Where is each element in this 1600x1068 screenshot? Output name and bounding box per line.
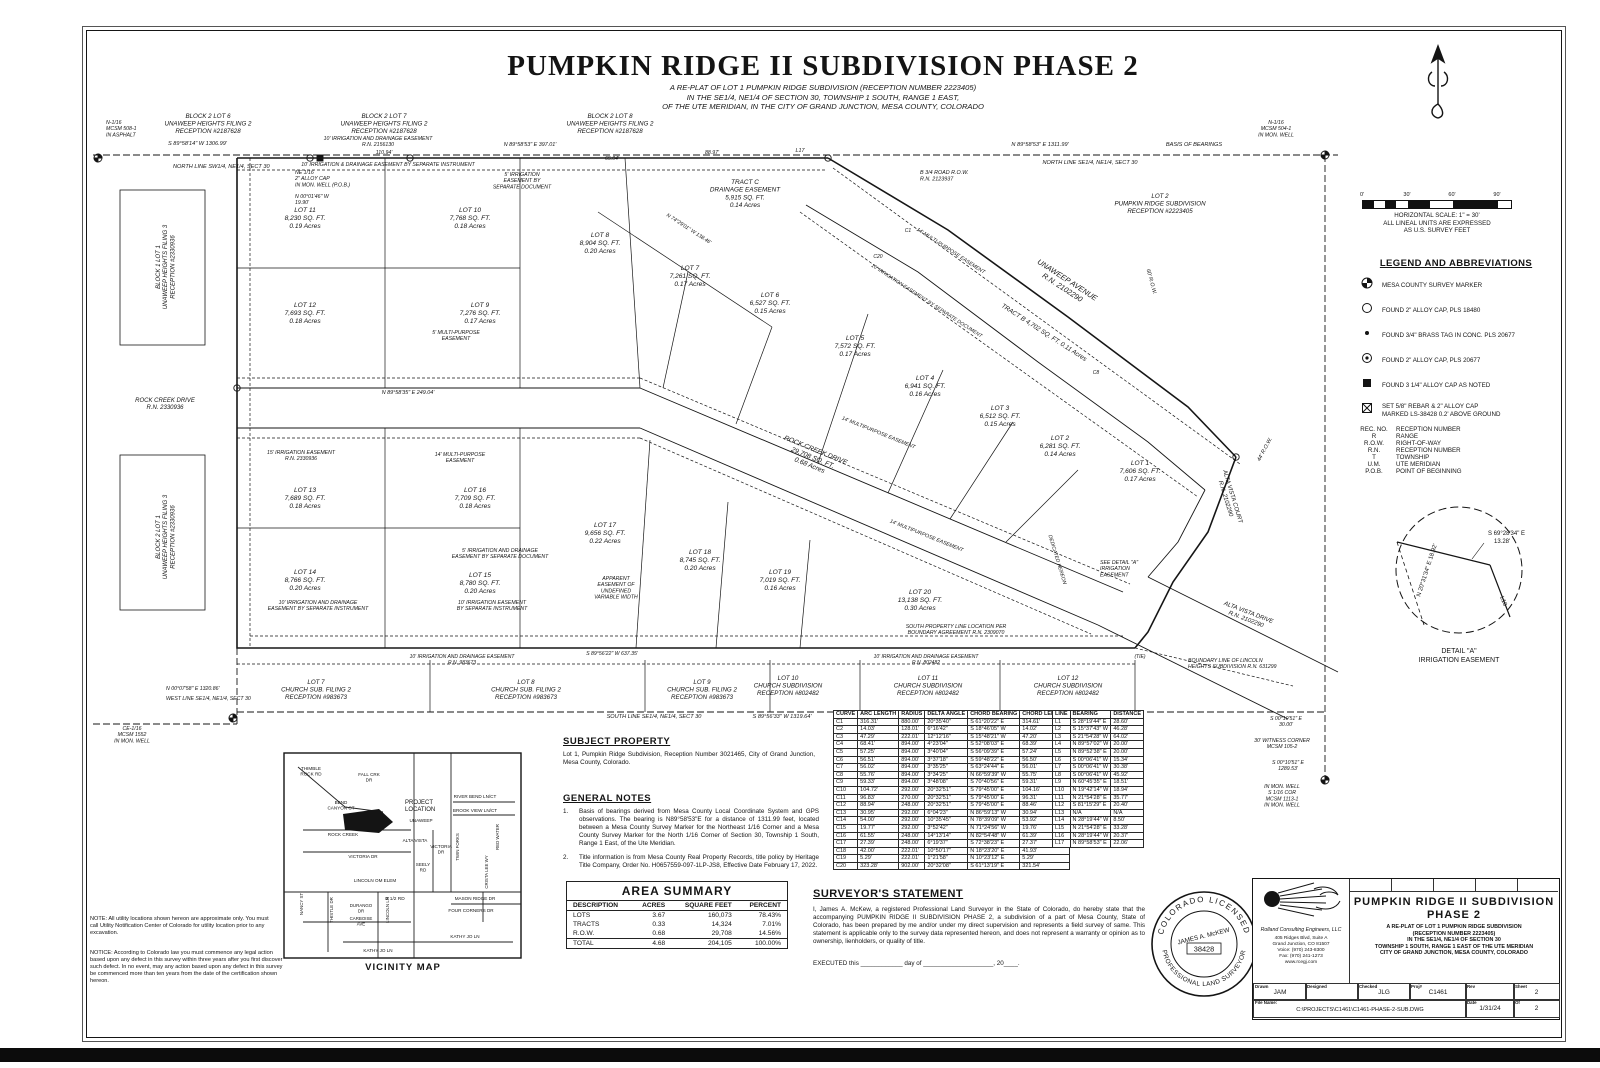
vicinity-street-label: FOUR CORNERS DR [448, 908, 494, 913]
table-row: L3S 21°54'28" W64.02' [1053, 733, 1144, 741]
plat-annotation: 110.94' [376, 150, 393, 156]
vicinity-street-label: CRISTA LEE WY [484, 855, 489, 888]
table-cell: S 70°40'56" E [968, 779, 1020, 787]
table-cell: L13 [1053, 809, 1071, 817]
note-number: 1. [563, 808, 579, 848]
plat-annotation: BLOCK 2 LOT 1UNAWEEP HEIGHTS FILING 3REC… [156, 494, 176, 579]
vicinity-street-label: TWIN FORKS [455, 833, 460, 861]
table-cell: L2 [1053, 726, 1071, 734]
plat-annotation: 10' IRRIGATION EASEMENTBY SEPARATE INSTR… [457, 600, 528, 612]
table-cell: S 15°48'21" W [968, 733, 1020, 741]
field-filename-label: File Name: [1255, 1000, 1277, 1005]
lot-label: LOT 158,780 SQ. FT.0.20 Acres [460, 572, 501, 595]
field-of: Of 2 [1513, 999, 1560, 1018]
general-note-item: 2.Title information is from Mesa County … [563, 854, 819, 870]
field-date: Date 1/31/24 [1465, 999, 1515, 1018]
table-cell: 18.94' [1111, 786, 1144, 794]
general-notes: GENERAL NOTES 1.Basis of bearings derive… [563, 793, 819, 876]
abbreviation-value: RECEPTION NUMBER [1396, 426, 1461, 433]
lot-label: LOT 137,689 SQ. FT.0.18 Acres [285, 487, 326, 510]
table-cell: C2 [834, 726, 858, 734]
vicinity-street-label: KATHY JO LN [363, 948, 392, 953]
scale-tick: 0' [1360, 192, 1364, 198]
table-cell: 292.00' [899, 817, 925, 825]
plat-annotation: NORTH LINE SW1/4, NE1/4, SECT 30 [173, 164, 270, 170]
title-block: Rolland Consulting Engineers, LLC 405 Ri… [1252, 878, 1560, 1020]
detail-a-caption2: IRRIGATION EASEMENT [1419, 657, 1500, 664]
table-cell: 3°40'04" [925, 748, 968, 756]
table-cell: 64.02' [1111, 733, 1144, 741]
table-cell: N 66°59'39" W [968, 771, 1020, 779]
table-cell: S 63°24'44" E [968, 764, 1020, 772]
table-cell: N/A [1111, 809, 1144, 817]
lot-label: LOT 57,572 SQ. FT.0.17 Acres [835, 335, 876, 358]
table-cell: 292.00' [899, 809, 925, 817]
table-row: L5N 89°52'38" E20.00' [1053, 748, 1144, 756]
table-row: L11N 21°54'28" E35.77' [1053, 794, 1144, 802]
table-cell: 68.41' [858, 741, 899, 749]
plat-annotation: CE-1/16MCSM 1552IN MON. WELL [114, 726, 150, 744]
title-area: PUMPKIN RIDGE II SUBDIVISION PHASE 2 A R… [88, 50, 1558, 112]
table-header: CHORD BEARING [968, 711, 1020, 719]
table-cell: S 79°45'00" E [968, 794, 1020, 802]
table-row: C656.51'894.00'3°37'18"S 59°48'22" E56.5… [834, 756, 1070, 764]
plat-annotation: ROCK CREEK DRIVER.N. 2330936 [135, 398, 196, 411]
table-row: L13N/AN/A [1053, 809, 1144, 817]
table-cell: S 72°38'23" E [968, 840, 1020, 848]
company-name: Rolland Consulting Engineers, LLC [1253, 927, 1349, 933]
vicinity-map-caption: VICINITY MAP [283, 962, 523, 973]
table-cell: 894.00' [899, 748, 925, 756]
vicinity-street-label: UNAWEEP [409, 818, 432, 823]
area-cell: TOTAL [567, 939, 632, 949]
vicinity-street-label: BENDCANYON CT [327, 800, 354, 811]
title-block-title: PUMPKIN RIDGE II SUBDIVISION PHASE 2 A R… [1349, 893, 1559, 957]
table-cell: 20°32'51" [925, 786, 968, 794]
table-cell: N 89°52'38" E [1070, 748, 1111, 756]
plat-annotation: LOT 7CHURCH SUB. FILING 2RECEPTION #9836… [281, 679, 351, 701]
plat-annotation: BLOCK 1 LOT 1UNAWEEP HEIGHTS FILING 3REC… [156, 224, 176, 309]
table-cell: 15.34' [1111, 756, 1144, 764]
table-cell: N 21°54'28" E [1070, 794, 1111, 802]
plat-annotation: SOUTH LINE SE1/4, NE1/4, SECT 30 [607, 714, 703, 720]
vicinity-street-label: NANCY ST [299, 893, 304, 915]
plat-annotation: N 89°58'53" E 397.01' [504, 142, 558, 148]
plat-annotation: WEST LINE SE1/4, NE1/4, SECT 30 [166, 696, 251, 702]
table-cell: N 60°45'35" E [1070, 779, 1111, 787]
table-cell: 14°13'14" [925, 832, 968, 840]
plat-annotation: N 00°01'46" W19.90' [295, 194, 330, 206]
plat-annotation: APPARENTEASEMENT OFUNDEFINEDVARIABLE WID… [594, 576, 638, 601]
plat-annotation: 88.97' [705, 150, 720, 156]
table-cell: 894.00' [899, 771, 925, 779]
table-row: L15N 21°54'28" E33.28' [1053, 824, 1144, 832]
vicinity-street-label: CARBOISEAVE [350, 916, 373, 926]
vicinity-street-label: SEELYRD [416, 862, 430, 873]
legend-item: FOUND 3/4" BRASS TAG IN CONC. PLS 20677 [1352, 326, 1560, 345]
plat-sheet: PUMPKIN RIDGE II SUBDIVISION PHASE 2 A R… [0, 0, 1600, 1068]
plat-annotation: S 89°56'22" W 637.35' [586, 651, 639, 657]
plat-annotation: 60' R.O.W. [1145, 268, 1158, 295]
table-cell: 222.01' [899, 847, 925, 855]
plat-annotation: 30' WITNESS CORNERMCSM 105-2 [1254, 738, 1310, 750]
surveyor-body: I, James A. McKew, a registered Professi… [813, 906, 1145, 946]
plat-annotation: BLOCK 2 LOT 6UNAWEEP HEIGHTS FILING 2REC… [165, 113, 253, 135]
plat-annotation: UNAWEEP AVENUER.N. 2102290 [1031, 257, 1100, 311]
field-sheet-value: 2 [1514, 989, 1559, 996]
area-cell: R.O.W. [567, 929, 632, 939]
lot-label: LOT 66,527 SQ. FT.0.15 Acres [750, 292, 791, 315]
vicinity-street-label: VICTORIA DR [348, 854, 378, 859]
area-header: SQUARE FEET [671, 901, 738, 911]
surveyor-statement: SURVEYOR'S STATEMENT I, James A. McKew, … [813, 888, 1145, 968]
plat-annotation: IN MON. WELLS 1/16 CORMCSM 1113-1IN MON.… [1264, 784, 1300, 809]
table-row: L7S 00°06'41" W30.38' [1053, 764, 1144, 772]
table-cell: 222.01' [899, 733, 925, 741]
field-date-value: 1/31/24 [1466, 1005, 1514, 1012]
table-cell: 5.29' [858, 855, 899, 863]
table-cell: C17 [834, 840, 858, 848]
seal-number: 38428 [1194, 945, 1215, 954]
plat-annotation: BASIS OF BEARINGS [1166, 142, 1222, 148]
table-cell: N 89°57'02" W [1070, 741, 1111, 749]
table-row: C214.03'128.01'6°16'42"S 18°46'05" W14.0… [834, 726, 1070, 734]
field-filename-value: C:\PROJECTS\C1461\C1461-PHASE-2-SUB.DWG [1254, 1007, 1466, 1013]
table-cell: 18.51' [1111, 779, 1144, 787]
detail-a: S 69°28'34" E 13.28' N 20°31'34" E 18.92… [1372, 495, 1547, 675]
lot-label: LOT 148,766 SQ. FT.0.20 Acres [285, 569, 326, 592]
abbreviation-value: RIGHT-OF-WAY [1396, 440, 1441, 447]
plat-annotation: NORTH LINE SE1/4, NE1/4, SECT 30 [1042, 160, 1138, 166]
table-cell: C5 [834, 748, 858, 756]
table-cell: C8 [834, 771, 858, 779]
detail-a-caption: DETAIL "A" [1441, 648, 1477, 655]
title-sub2: IN THE SE1/4, NE1/4 OF SECTION 30, TOWNS… [88, 93, 1558, 103]
svg-text:COLORADO LICENSED: COLORADO LICENSED [1156, 895, 1252, 936]
plat-annotation: LOT 8CHURCH SUB. FILING 2RECEPTION #9836… [491, 679, 561, 701]
table-cell: N 10°23'12" E [968, 855, 1020, 863]
plat-annotation: 14' MULTIPURPOSE EASEMENT [889, 519, 965, 554]
table-cell: 5.29' [1020, 855, 1069, 863]
lot-label: LOT 2013,138 SQ. FT.0.30 Acres [898, 589, 943, 612]
table-cell: C1 [834, 718, 858, 726]
plat-annotation: BOUNDARY LINE OF LINCOLNHEIGHTS SUBDIVIS… [1188, 658, 1277, 670]
company-logo-icon [1256, 881, 1346, 921]
table-cell: C3 [834, 733, 858, 741]
table-row: C1519.77'292.00'3°52'42"N 71°24'56" W19.… [834, 824, 1070, 832]
scale-bar-graphic [1362, 200, 1512, 209]
plat-annotation: 14' MULTIPURPOSE EASEMENT [841, 416, 917, 451]
abbreviation-value: RECEPTION NUMBER [1396, 447, 1461, 454]
table-cell: 4°23'04" [925, 741, 968, 749]
table-cell: 46.28' [1111, 726, 1144, 734]
table-row: C557.25'894.00'3°40'04"S 56°09'39" E57.2… [834, 748, 1070, 756]
table-cell: 28.60' [1111, 718, 1144, 726]
lot-label: LOT 179,656 SQ. FT.0.22 Acres [585, 522, 626, 545]
lot-label: LOT 17,606 SQ. FT.0.17 Acres [1120, 460, 1161, 483]
table-cell: N 21°54'28" E [1070, 824, 1111, 832]
lot-label: LOT 118,230 SQ. FT.0.19 Acres [285, 207, 326, 230]
area-cell: 7.01% [738, 920, 787, 929]
page-title: PUMPKIN RIDGE II SUBDIVISION PHASE 2 [88, 50, 1558, 83]
table-row: C855.76'894.00'3°34'25"N 66°59'39" W55.7… [834, 771, 1070, 779]
table-row: L10N 19°42'14" W18.94' [1053, 786, 1144, 794]
area-cell: 4.68 [632, 939, 672, 949]
table-cell: 6°19'37" [925, 840, 968, 848]
legend-item-label: FOUND 3 1/4" ALLOY CAP AS NOTED [1382, 382, 1490, 389]
table-cell: 19.77' [858, 824, 899, 832]
vicinity-street-label: KATHY JO LN [450, 934, 479, 939]
lot-label: LOT 107,768 SQ. FT.0.18 Acres [450, 207, 491, 230]
table-cell: L1 [1053, 718, 1071, 726]
table-row: C1316.31'880.00'20°35'40"S 61°20'22" E31… [834, 718, 1070, 726]
table-cell: 12°12'16" [925, 733, 968, 741]
vicinity-street-label: THIMBLEROCK RD [300, 766, 322, 777]
table-cell: 88.94' [858, 802, 899, 810]
table-cell: 128.01' [899, 726, 925, 734]
vicinity-street-label: VICTORIADR [430, 844, 453, 855]
road-edges [237, 205, 1338, 719]
table-cell: C13 [834, 809, 858, 817]
legend-item: FOUND 2" ALLOY CAP, PLS 18480 [1352, 301, 1560, 320]
plat-annotation: 14' MULTI-PURPOSEEASEMENT [435, 452, 486, 464]
vicinity-street-label: THISTLE DR [329, 897, 334, 923]
field-proj-value: C1461 [1410, 989, 1466, 996]
plat-annotation: SEE DETAIL "A"IRRIGATIONEASEMENT [1100, 560, 1139, 578]
table-cell: L3 [1053, 733, 1071, 741]
table-row: C1842.00'222.01'10°50'17"N 18°23'20" E41… [834, 847, 1070, 855]
abbreviation-row: R.N.RECEPTION NUMBER [1352, 447, 1560, 454]
table-cell: S 00°06'41" W [1070, 764, 1111, 772]
detail-a-bearing2: N 20°31'34" E 18.92' [1416, 543, 1439, 597]
scale-caption: HORIZONTAL SCALE: 1" = 30' [1352, 212, 1522, 220]
lot-label: LOT 88,904 SQ. FT.0.20 Acres [580, 232, 621, 255]
table-row: L6S 00°06'41" W15.34' [1053, 756, 1144, 764]
abbreviation-key: R [1352, 433, 1396, 440]
plat-annotation: N 74°29'01" W 138.46' [665, 212, 713, 246]
table-cell: C19 [834, 855, 858, 863]
plat-annotation: N 89°58'35" E 249.04' [382, 390, 436, 396]
plat-annotation: 10' IRRIGATION AND DRAINAGE EASEMENTR.N.… [324, 136, 434, 148]
table-cell: 56.51' [858, 756, 899, 764]
table-cell: 3°37'18" [925, 756, 968, 764]
legend-item: FOUND 3 1/4" ALLOY CAP AS NOTED [1352, 376, 1560, 395]
field-drawn-value: JAM [1254, 989, 1306, 996]
abbreviation-row: R.O.W.RIGHT-OF-WAY [1352, 440, 1560, 447]
scale-caption2: ALL LINEAL UNITS ARE EXPRESSED [1352, 220, 1522, 228]
table-cell: N 28°19'44" W [1070, 832, 1111, 840]
lot-label: LOT 197,019 SQ. FT.0.16 Acres [760, 569, 801, 592]
table-cell: L6 [1053, 756, 1071, 764]
plat-annotation: (TIE) [1134, 654, 1145, 660]
field-designed-label: Designed [1307, 984, 1327, 989]
table-cell: S 79°45'00" E [968, 786, 1020, 794]
mcsm-marker-icon [94, 154, 102, 162]
table-cell: 41.93' [1020, 847, 1069, 855]
revision-strip [1349, 879, 1558, 892]
field-filename: File Name: C:\PROJECTS\C1461\C1461-PHASE… [1253, 999, 1467, 1018]
plat-annotation: 5' IRRIGATIONEASEMENT BYSEPARATE DOCUMEN… [493, 172, 552, 190]
project-location-marker [343, 809, 393, 833]
mcsm-marker-icon [229, 714, 237, 722]
vicinity-street-label: LINCOLN OM ELEM [354, 878, 397, 883]
table-row: L12S 81°15'29" E20.40' [1053, 802, 1144, 810]
table-cell: S 18°46'05" W [968, 726, 1020, 734]
area-header: DESCRIPTION [567, 901, 632, 911]
table-cell: 248.00' [899, 840, 925, 848]
plat-annotation: 5' IRRIGATION AND DRAINAGEEASEMENT BY SE… [452, 548, 549, 560]
area-summary-title: AREA SUMMARY [567, 882, 787, 901]
plat-annotation: N 00°07'58" E 1320.86' [166, 686, 220, 692]
area-cell: 204,105 [671, 939, 738, 949]
seal-name: JAMES A. McKEW [1177, 926, 1232, 946]
scale-tick: 60' [1448, 192, 1455, 198]
table-cell: C20 [834, 862, 858, 870]
table-row: C195.29'222.01'1°21'58"N 10°23'12" E5.29… [834, 855, 1070, 863]
table-row: C1288.94'248.00'20°32'51"S 79°45'00" E88… [834, 802, 1070, 810]
plat-annotation: 10' IRRIGATION AND DRAINAGEEASEMENT BY S… [268, 600, 369, 612]
table-cell: 1°21'58" [925, 855, 968, 863]
surveyor-seal: COLORADO LICENSED PROFESSIONAL LAND SURV… [1146, 886, 1262, 1002]
table-cell: L10 [1053, 786, 1071, 794]
table-cell: 248.00' [899, 802, 925, 810]
table-cell: S 00°06'41" W [1070, 756, 1111, 764]
table-cell: 3°34'25" [925, 771, 968, 779]
vicinity-street-label: PROJECTLOCATION [405, 800, 435, 813]
area-cell: 78.43% [738, 911, 787, 921]
plat-annotation: C20 [873, 254, 882, 260]
vicinity-street-label: BROOK VIEW LN/CT [453, 808, 497, 813]
legal-notice: NOTICE: According to Colorado law you mu… [90, 950, 286, 985]
general-notes-heading: GENERAL NOTES [563, 793, 819, 804]
table-cell: 20.37' [1111, 832, 1144, 840]
table-cell: S 56°09'39" E [968, 748, 1020, 756]
area-row: R.O.W.0.6829,70814.56% [567, 929, 787, 939]
table-cell: 8.50' [1111, 817, 1144, 825]
plat-annotation: S 89°56'33" W 1319.64' [753, 714, 813, 720]
table-row: L9N 60°45'35" E18.51' [1053, 779, 1144, 787]
table-cell: N 71°24'56" W [968, 824, 1020, 832]
table-cell: 6°04'23" [925, 809, 968, 817]
abbreviation-row: REC. NO.RECEPTION NUMBER [1352, 426, 1560, 433]
abbreviation-key: T [1352, 454, 1396, 461]
table-header: CURVE [834, 711, 858, 719]
table-cell: 292.00' [899, 786, 925, 794]
plat-annotation: LOT 2PUMPKIN RIDGE SUBDIVISIONRECEPTION … [1114, 193, 1206, 215]
subject-body: Lot 1, Pumpkin Ridge Subdivision, Recept… [563, 751, 815, 767]
table-row: L8S 00°06'41" W45.92' [1053, 771, 1144, 779]
table-cell: 104.72' [858, 786, 899, 794]
table-cell: S 61°13'19" E [968, 862, 1020, 870]
table-cell: L8 [1053, 771, 1071, 779]
table-cell: 292.00' [899, 824, 925, 832]
table-cell: 42.00' [858, 847, 899, 855]
executed-line: EXECUTED this ____________ day of ______… [813, 960, 1145, 968]
area-cell: 100.00% [738, 939, 787, 949]
mcsm-symbol-icon [1358, 276, 1376, 290]
plat-annotation: ROCK CREEK DRIVE29,708 SQ. FT.0.68 Acres [777, 435, 849, 482]
table-cell: C14 [834, 817, 858, 825]
table-row: L17N 89°58'53" E22.06' [1053, 840, 1144, 848]
table-cell: L16 [1053, 832, 1071, 840]
abbreviation-row: RRANGE [1352, 433, 1560, 440]
scan-edge-strip [0, 1048, 1600, 1062]
table-cell: N 89°58'53" E [1070, 840, 1111, 848]
table-row: C1454.00'292.00'10°35'45"N 78°39'09" W53… [834, 817, 1070, 825]
vicinity-street-label: DURANGODR [350, 903, 373, 913]
abbreviation-key: R.O.W. [1352, 440, 1396, 447]
dot-symbol-icon [1358, 326, 1376, 340]
note-text: Title information is from Mesa County Re… [579, 854, 819, 870]
table-cell: 270.00' [899, 794, 925, 802]
table-row: L14N 28°19'44" W8.50' [1053, 817, 1144, 825]
table-header: ARC LENGTH [858, 711, 899, 719]
table-cell: 894.00' [899, 764, 925, 772]
table-cell: 20°32'51" [925, 802, 968, 810]
note-text: Basis of bearings derived from Mesa Coun… [579, 808, 819, 848]
area-header: ACRES [632, 901, 672, 911]
plat-annotation: LOT 9CHURCH SUB. FILING 2RECEPTION #9836… [667, 679, 737, 701]
table-header: DELTA ANGLE [925, 711, 968, 719]
plat-annotation: BLOCK 2 LOT 7UNAWEEP HEIGHTS FILING 2REC… [341, 113, 429, 135]
table-cell: N 82°54'48" W [968, 832, 1020, 840]
table-cell: 59.33' [858, 779, 899, 787]
field-rev-label: Rev [1467, 984, 1475, 989]
north-arrow-icon [1408, 42, 1468, 122]
table-cell: 35.77' [1111, 794, 1144, 802]
general-note-item: 1.Basis of bearings derived from Mesa Co… [563, 808, 819, 848]
area-cell: 14,324 [671, 920, 738, 929]
area-cell: 160,073 [671, 911, 738, 921]
lot-label: LOT 26,281 SQ. FT.0.14 Acres [1040, 435, 1081, 458]
table-cell: S 79°45'00" E [968, 802, 1020, 810]
utility-note: NOTE: All utility locations shown hereon… [90, 916, 276, 937]
table-row: C10104.72'292.00'20°32'51"S 79°45'00" E1… [834, 786, 1070, 794]
plat-annotation: N-1/16MCSM 508-1IN ASPHALT [106, 120, 137, 138]
table-cell: 30.95' [858, 809, 899, 817]
table-cell: L14 [1053, 817, 1071, 825]
table-cell: L11 [1053, 794, 1071, 802]
area-cell: 14.56% [738, 929, 787, 939]
table-cell: 248.00' [899, 832, 925, 840]
tb-sub4: TOWNSHIP 1 SOUTH, RANGE 1 EAST OF THE UT… [1349, 944, 1559, 951]
abbreviation-key: REC. NO. [1352, 426, 1396, 433]
mcsm-marker-icon [1321, 151, 1329, 159]
curve-table: CURVEARC LENGTHRADIUSDELTA ANGLECHORD BE… [833, 710, 1070, 870]
title-block-company: Rolland Consulting Engineers, LLC 405 Ri… [1253, 879, 1350, 983]
table-cell: 222.01' [899, 855, 925, 863]
table-row: L4N 89°57'02" W20.00' [1053, 741, 1144, 749]
lot-label: LOT 36,512 SQ. FT.0.15 Acres [980, 405, 1021, 428]
table-cell: 894.00' [899, 741, 925, 749]
table-cell: C18 [834, 847, 858, 855]
table-cell: 10°50'17" [925, 847, 968, 855]
plat-annotation: LOT 11CHURCH SUBDIVISIONRECEPTION #80248… [894, 675, 963, 697]
legend-item: FOUND 2" ALLOY CAP, PLS 20677 [1352, 351, 1560, 370]
table-cell: 902.00' [899, 862, 925, 870]
table-cell: S 28°19'44" E [1070, 718, 1111, 726]
table-cell: 894.00' [899, 756, 925, 764]
abbreviation-value: RANGE [1396, 433, 1418, 440]
table-cell: S 61°20'22" E [968, 718, 1020, 726]
legend-symbols: MESA COUNTY SURVEY MARKERFOUND 2" ALLOY … [1352, 276, 1560, 420]
table-header: DISTANCE [1111, 711, 1144, 719]
table-row: C468.41'894.00'4°23'04"S 52°08'03" E68.3… [834, 741, 1070, 749]
table-header: BEARING [1070, 711, 1111, 719]
area-cell: 3.67 [632, 911, 672, 921]
plat-annotation: S 00°10'51" E30.00' [1270, 716, 1303, 728]
legend-abbreviations: REC. NO.RECEPTION NUMBERRRANGER.O.W.RIGH… [1352, 426, 1560, 475]
